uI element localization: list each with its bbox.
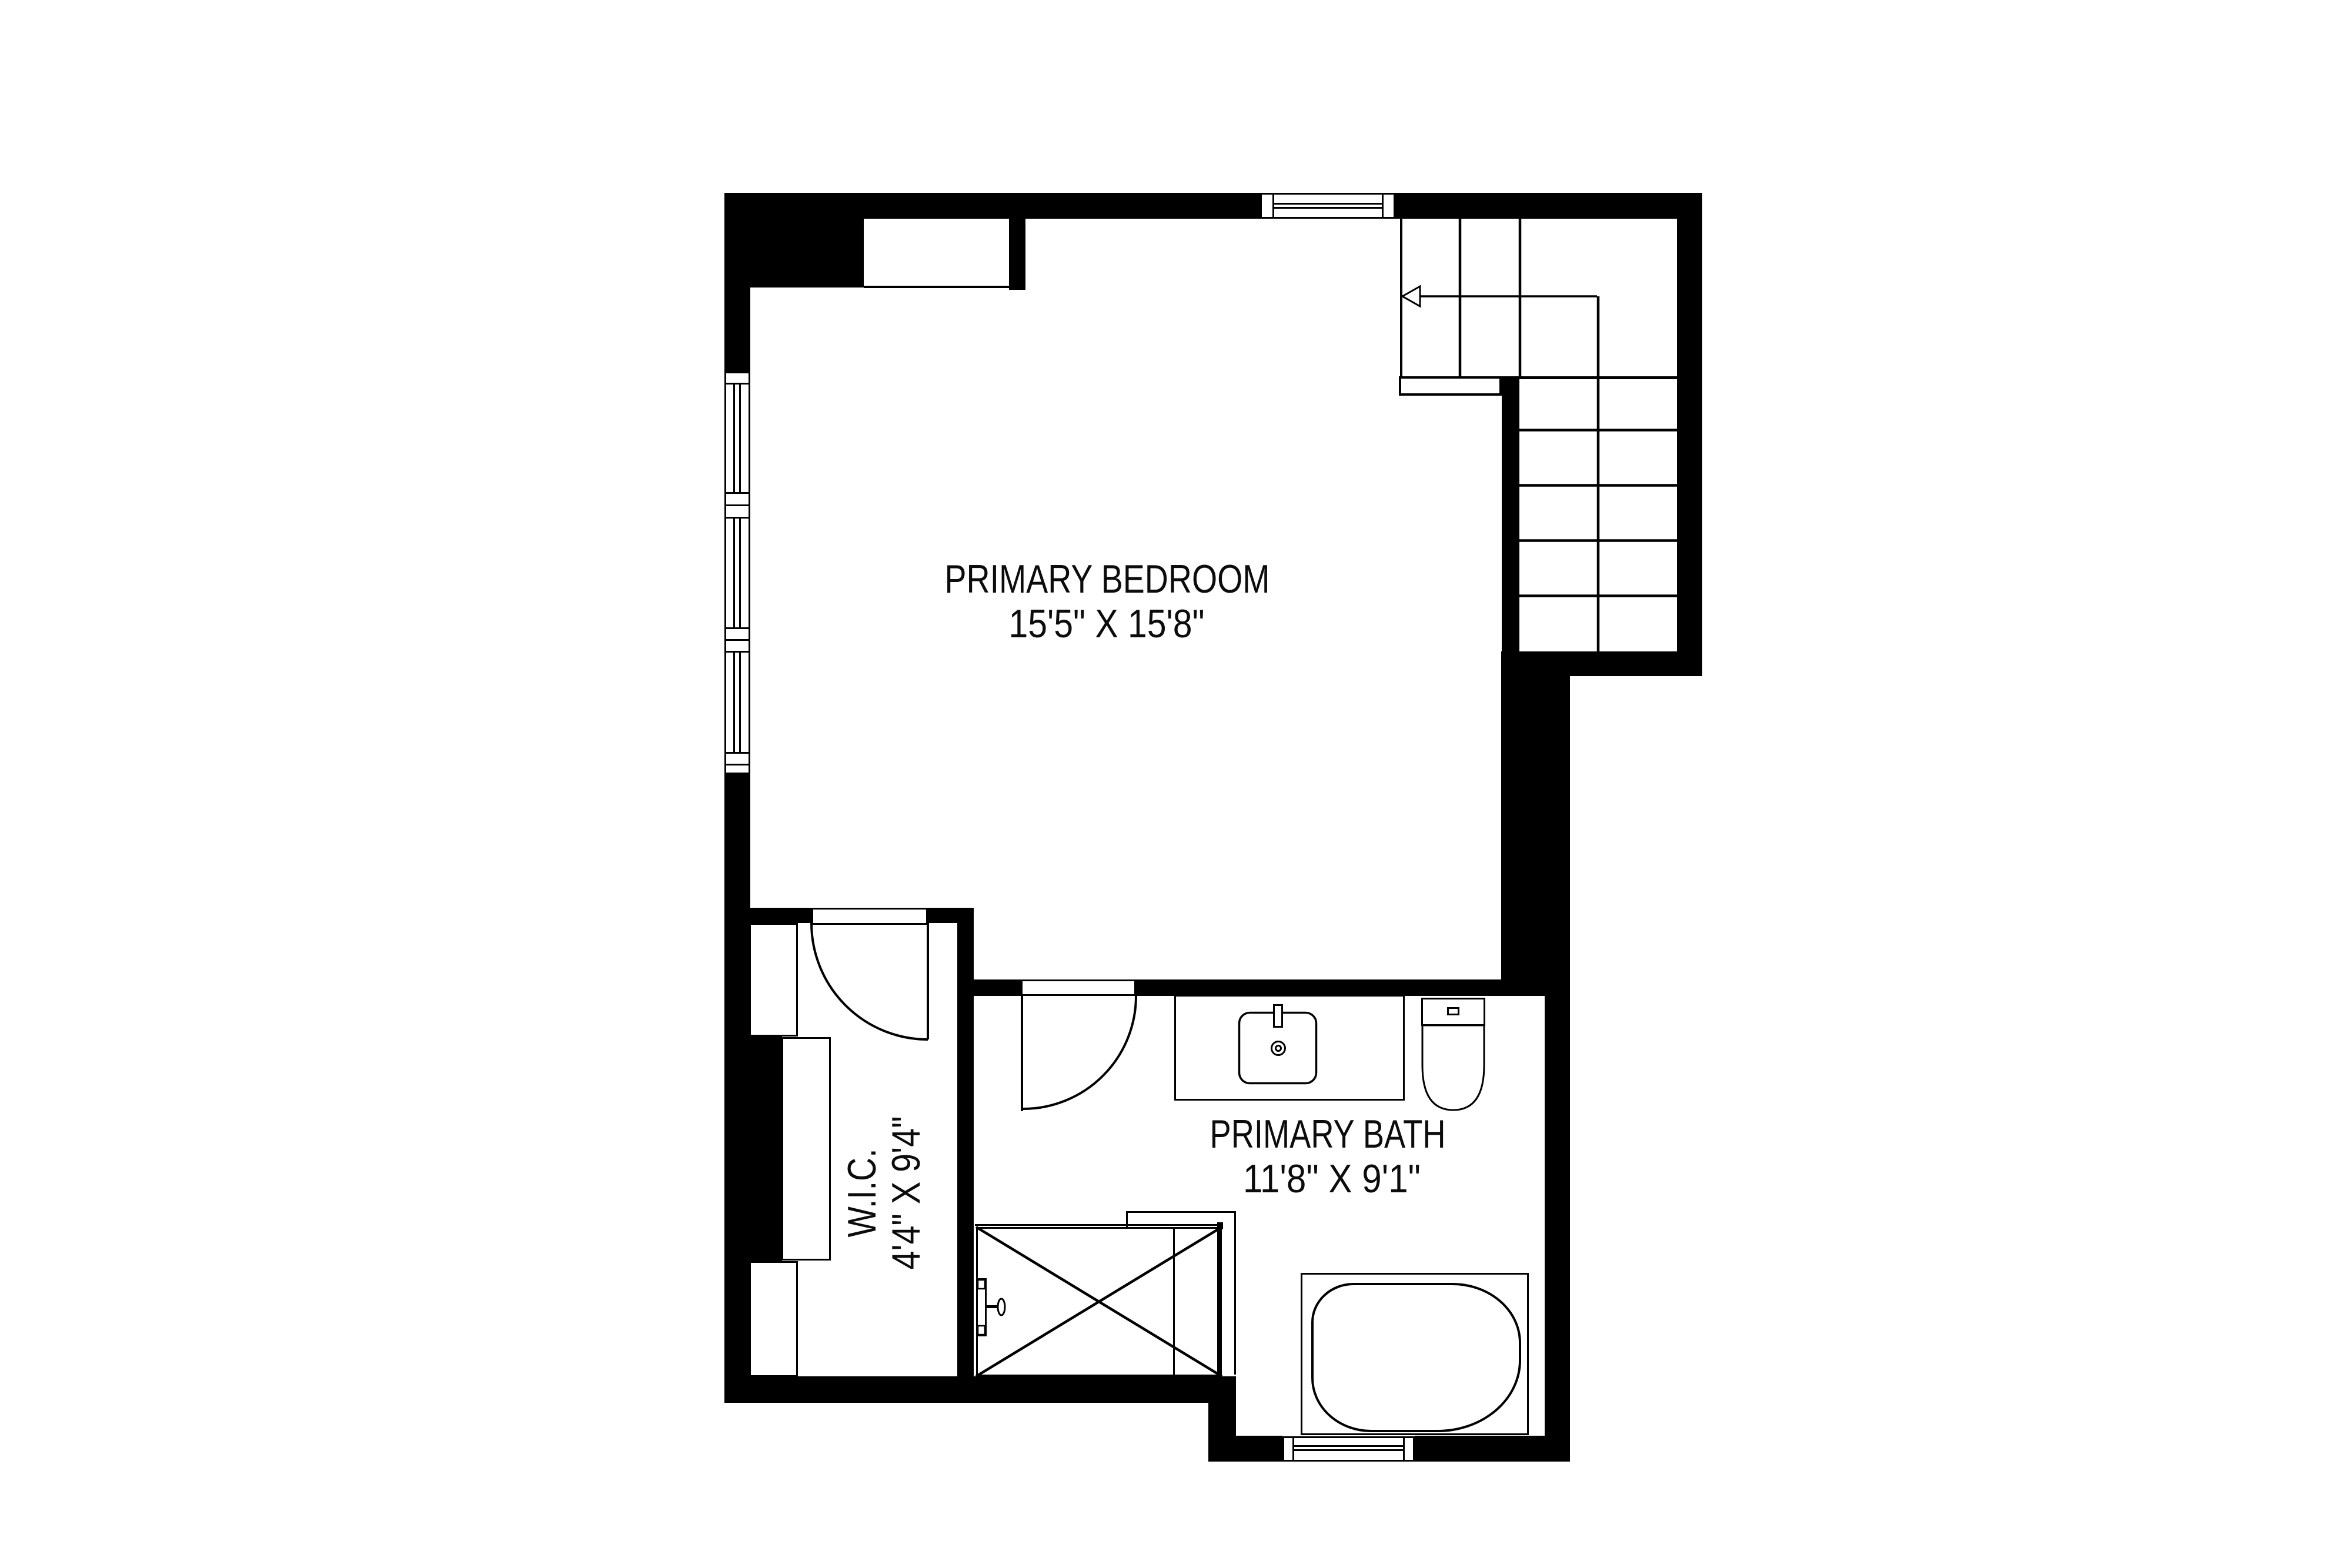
svg-text:PRIMARY BATH: PRIMARY BATH xyxy=(1210,1112,1446,1156)
svg-text:4'4" X 9'4": 4'4" X 9'4" xyxy=(884,1116,928,1270)
svg-text:11'8" X 9'1": 11'8" X 9'1" xyxy=(1243,1156,1421,1201)
svg-text:15'5" X 15'8": 15'5" X 15'8" xyxy=(1009,601,1205,646)
svg-text:W.I.C.: W.I.C. xyxy=(840,1149,884,1238)
svg-text:PRIMARY BEDROOM: PRIMARY BEDROOM xyxy=(945,557,1270,601)
